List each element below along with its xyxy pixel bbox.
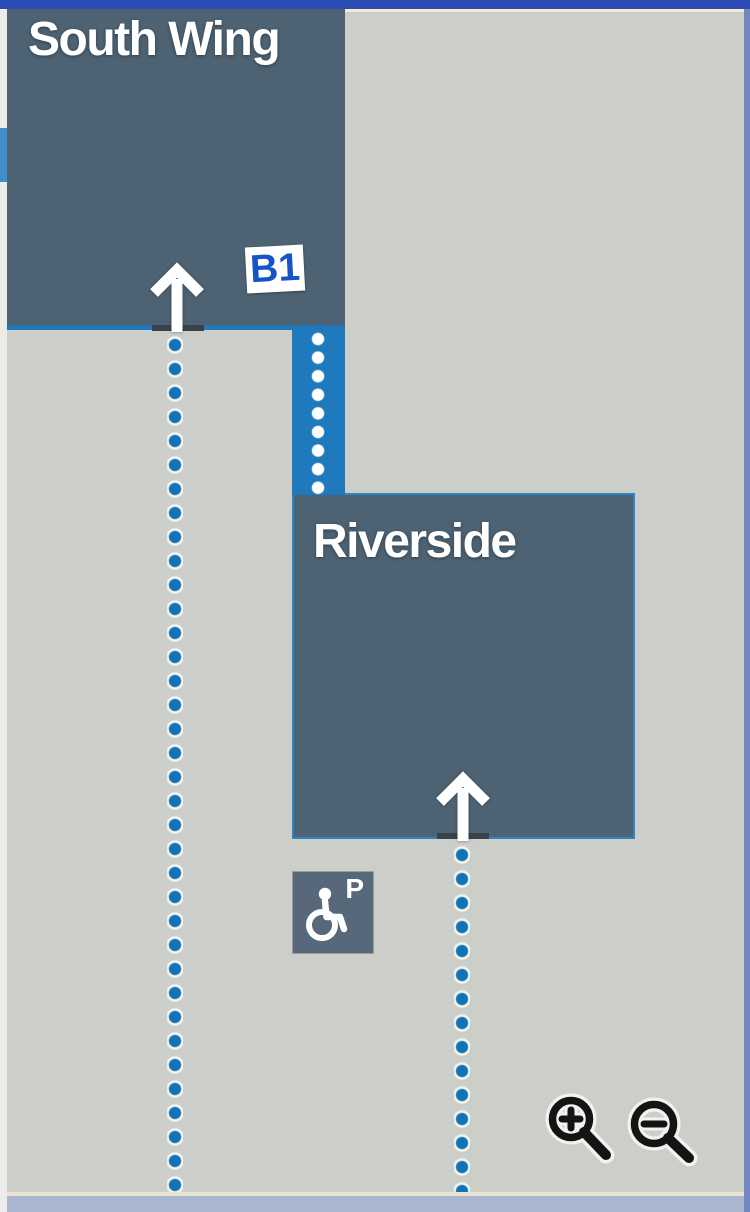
wheelchair-icon [300,887,352,942]
map-right-border [744,9,750,1212]
building-label-south-wing: South Wing [28,16,279,64]
up-arrow-icon [148,261,206,332]
map-top-edge-highlight [345,9,744,12]
walking-path-left [167,334,183,1212]
up-arrow-icon [434,770,492,841]
zoom-out-button[interactable] [625,1096,701,1175]
map-bottom-strip [0,1196,750,1212]
building-label-riverside: Riverside [313,518,516,566]
clipped-path-marker-left [0,128,7,182]
zoom-in-button[interactable] [544,1092,616,1173]
accessible-parking-marker[interactable]: P [293,872,373,953]
zoom-out-icon [625,1096,701,1172]
parking-p-label: P [345,874,364,905]
corridor-dotted-path [311,330,325,497]
map-left-edge [0,9,7,1212]
map-top-border [0,0,750,9]
zoom-in-icon [544,1092,616,1170]
level-badge-b1[interactable]: B1 [245,245,305,294]
walking-path-right [454,844,470,1212]
campus-map[interactable]: South Wing Riverside B1 P [0,0,750,1212]
